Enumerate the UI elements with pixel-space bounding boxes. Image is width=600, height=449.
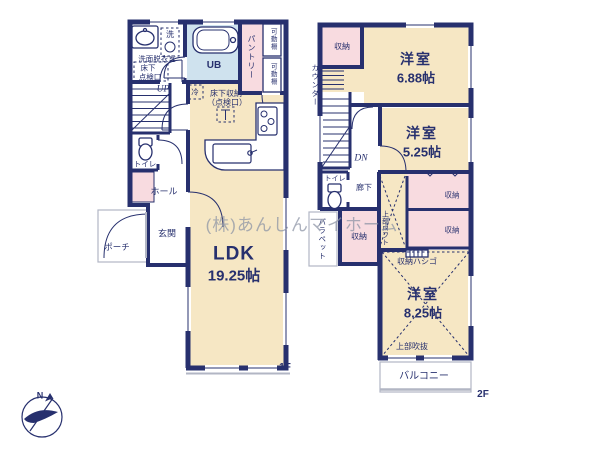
movable-shelf-label-2: 可動棚	[269, 63, 276, 86]
room3-size-label: 8.25帖	[404, 307, 442, 320]
closet-right2-label: 収納	[445, 226, 460, 234]
porch-label: ポーチ	[104, 243, 130, 252]
toilet-icon-2f	[328, 184, 341, 209]
floorplan-canvas: 洗面脱衣室 床下 点検口 洗 UB パントリー 可動棚 可動棚 UP トイレ ホ…	[0, 0, 600, 449]
toilet-icon-1f	[139, 138, 152, 160]
room2-name-label: 洋室	[406, 126, 438, 140]
underfloor-storage-label-1: 床下収納	[210, 90, 242, 98]
porch-outline	[98, 210, 148, 262]
hallway-label: 廊下	[356, 184, 372, 192]
hall-label: ホール	[150, 188, 177, 197]
floor-1-plan	[98, 19, 290, 374]
room1-name-label: 洋室	[400, 52, 432, 66]
ldk-size-label: 19.25帖	[208, 269, 261, 284]
room1-size-label: 6.88帖	[397, 72, 435, 85]
washroom-hatch-label-2: 点検口	[139, 73, 162, 81]
pantry-label: パントリー	[247, 35, 255, 80]
stairs-1f	[131, 89, 170, 131]
stairs-up-label: UP	[157, 85, 170, 95]
ldk-name-label: LDK	[213, 245, 255, 264]
washroom-hatch-label-1: 床下	[141, 64, 156, 72]
closet-nw-label: 収納	[334, 43, 350, 51]
room3-name-label: 洋室	[407, 287, 439, 301]
counter-label: カウンター	[311, 64, 319, 107]
stairs-2f	[322, 99, 350, 167]
laundry-label: 洗	[166, 31, 174, 39]
company-watermark: (株)あんしんマイホーム	[206, 211, 399, 236]
room2-size-label: 5.25帖	[403, 146, 441, 159]
floor-2-plan	[309, 22, 474, 392]
unit-bath-label: UB	[207, 61, 221, 71]
underfloor-storage-label-2: （点検口）	[207, 99, 247, 107]
movable-shelf-label-1: 可動棚	[269, 28, 276, 51]
void-above-label: 上部吹抜	[396, 343, 428, 351]
entrance-label: 玄関	[158, 230, 176, 239]
ladder-label: 収納ハシゴ	[397, 258, 437, 266]
floor-1-label: 1F	[279, 363, 291, 373]
closet-right1-label: 収納	[445, 191, 460, 199]
floor-2-label: 2F	[477, 390, 489, 400]
balcony-label: バルコニー	[399, 372, 449, 382]
washroom-label: 洗面脱衣室	[138, 55, 176, 63]
toilet-2f-label: トイレ	[325, 176, 346, 183]
fridge-label: 冷	[191, 88, 199, 96]
compass-north-label: N	[37, 392, 44, 401]
toilet-1f-label: トイレ	[134, 160, 157, 168]
stairs-down-label: DN	[354, 154, 367, 164]
loft-ladder-icon	[406, 250, 428, 257]
washbasin-icon	[132, 26, 158, 48]
bathtub-icon	[193, 27, 238, 53]
